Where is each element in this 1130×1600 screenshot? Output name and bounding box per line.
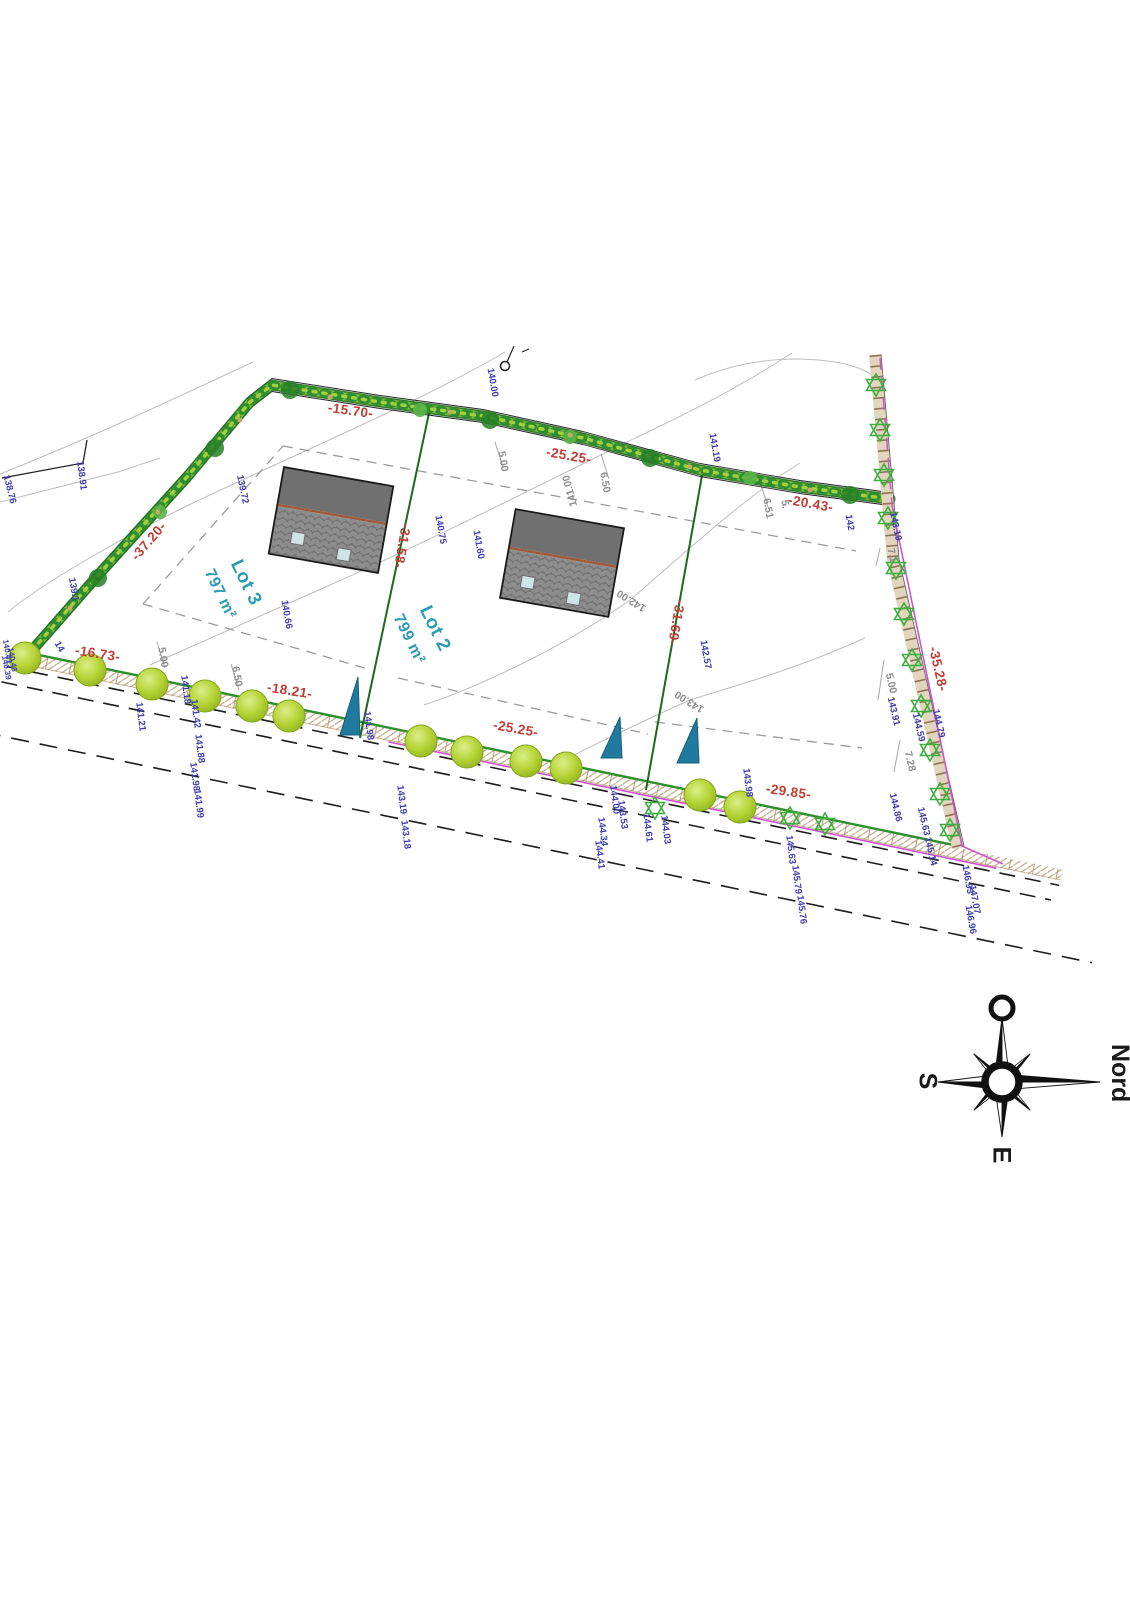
house-lot2 (500, 509, 624, 617)
spot-elevation-label: 141.60 (471, 529, 487, 560)
spot-elevation-label: 142 (843, 514, 857, 532)
compass-label-south: S (913, 1073, 941, 1090)
fence-edge-line (881, 354, 964, 846)
spot-elevation-label: 139.1 (66, 577, 81, 603)
spot-elevation-label: 141.42 (188, 699, 202, 729)
compass-center-ring (985, 1065, 1019, 1099)
tree (273, 700, 305, 732)
offset-dimension-label: 5. (778, 499, 791, 510)
spot-elevation-label: 141.21 (133, 702, 148, 733)
compass-label-east: E (987, 1147, 1015, 1164)
spot-elevation-label: 140.00 (485, 367, 501, 398)
house-lot3 (269, 467, 394, 573)
spot-elevation-label: 144.41 (592, 840, 607, 871)
lot-labels: Lot 3 797 m² Lot 2 799 m² (201, 556, 455, 666)
dimension-label: -29.85- (765, 781, 812, 802)
tree (136, 668, 168, 700)
compass-west-ring (991, 997, 1013, 1019)
spot-elevation-label: 145.63 (915, 806, 932, 837)
spot-elevation-label: 142.57 (698, 639, 714, 670)
offset-dimension-label: 6.50 (597, 471, 612, 493)
compass-label-north: Nord (1106, 1044, 1130, 1102)
compass-rose: S E Nord (913, 997, 1130, 1163)
corner-polyline (2, 440, 87, 478)
spot-elevation-label: 143.18 (398, 820, 412, 850)
offset-dimension-label: 7.28 (902, 750, 918, 773)
spot-elevation-label: 144.86 (887, 792, 904, 823)
offset-dimension-label: 6.50 (229, 665, 244, 687)
offset-dimension-label: 142.00 (614, 587, 648, 614)
skylight (566, 591, 581, 605)
offset-dimension-label: 5.00 (883, 672, 899, 695)
contour-139 (0, 362, 253, 474)
tree (510, 745, 542, 777)
spot-elevation-label: 141.99 (191, 789, 205, 819)
spot-elevation-label: 141.98 (361, 711, 375, 741)
offset-dimension-label: 7.1 (885, 547, 900, 564)
spot-elevation-label: 143.19 (394, 785, 408, 815)
setback-line (143, 604, 368, 669)
offset-dimension-label: 5.00 (155, 646, 170, 668)
spot-elevation-label: 145.76 (794, 895, 808, 925)
skylight (336, 548, 351, 562)
offset-dimension-label: 6.51 (760, 497, 775, 519)
spot-elevation-label: 145.63 (783, 835, 797, 865)
spot-elevation-label: 141.98 (187, 762, 201, 792)
dimension-label: -25.25- (492, 717, 539, 740)
spot-elevation-label: 141.19 (707, 432, 723, 463)
offset-dimension-label: 141.00 (560, 474, 580, 508)
spot-elevation-label: 144.61 (640, 813, 655, 844)
spot-elevation-label: 138.91 (74, 461, 89, 492)
tree (236, 690, 268, 722)
spot-elevation-label: 140.66 (279, 599, 295, 630)
spot-elevation-label: 143.91 (885, 696, 902, 727)
offset-dimension-label: 5.00 (495, 450, 510, 472)
spot-elevation-label: 144.03 (658, 815, 672, 845)
tree (684, 779, 716, 811)
spot-elevation-label: 145.79 (789, 865, 803, 895)
offset-dimension-label: 143.00 (672, 688, 706, 715)
access-triangle (601, 717, 622, 758)
spot-elevation-label: 140.75 (433, 514, 449, 545)
spot-elevation-label: 14 (52, 639, 67, 654)
skylight (290, 531, 305, 545)
plan-canvas: -15.70--25.25--20.43--37.20--31.58--31.6… (0, 0, 1130, 1600)
road-dashed-line-1 (7, 667, 1060, 886)
spot-elevation-label: 143.53 (615, 800, 629, 830)
dimension-label: -18.21- (266, 680, 313, 702)
dimension-label: -31.69- (665, 599, 688, 646)
tree (451, 736, 483, 768)
utility-symbol-tail (507, 346, 529, 362)
utility-symbol (501, 362, 510, 371)
dimension-label: -31.58- (391, 522, 414, 569)
contour-upper-right (695, 359, 877, 380)
tree (550, 752, 582, 784)
access-triangle (340, 677, 360, 735)
tree (405, 725, 437, 757)
spot-elevation-label: 138.76 (1, 474, 19, 505)
survey-plan-page: -15.70--25.25--20.43--37.20--31.58--31.6… (0, 0, 1130, 1600)
spot-elevation-label: 141.88 (192, 734, 206, 764)
spot-elevation-label: 139.72 (234, 474, 251, 505)
dimension-label: -25.25- (545, 444, 592, 467)
skylight (520, 575, 535, 589)
